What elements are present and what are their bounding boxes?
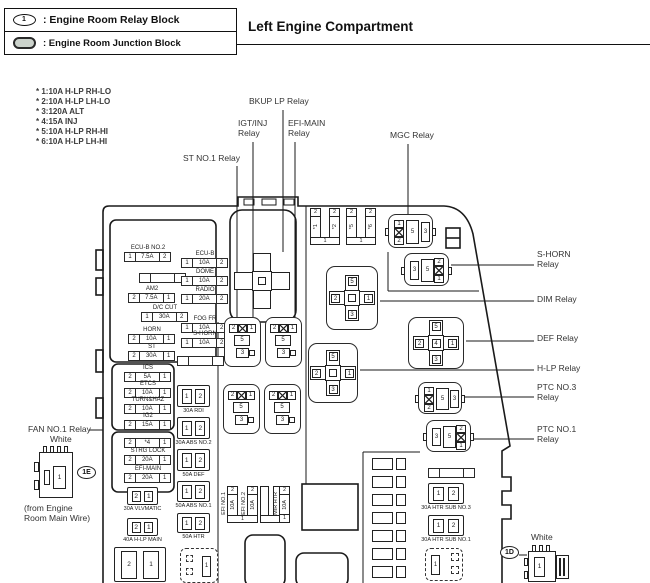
fuse-slot: 2*6 [365,208,376,238]
fuse-note: * 4:15A INJ [36,117,111,127]
connector-pin: 1 [431,555,440,575]
fuse-box [428,468,475,478]
relay-pin [456,433,466,442]
page-title: Left Engine Compartment [248,19,413,34]
relay-pin-nub [401,267,405,275]
fuse-slot-name-text: EFI NO.1 [221,492,227,515]
fuse-box-2: 12 [177,449,210,471]
relay-pin-nub [385,228,389,236]
fuse-box: 230A1 [128,351,175,361]
fuse-cell: 2 [216,258,228,268]
callout-text: ST NO.1 Relay [183,154,240,164]
fuse-slot-pin: 1 [280,514,289,521]
connector-tab [34,480,39,490]
relay-block-symbol: 1 [13,14,36,26]
callout-text: Room Main Wire) [24,514,90,524]
fuse-cell: 1 [163,293,175,303]
fuse-label: 30A HTR SUB NO.1 [401,537,491,543]
fuse-label: STRG LOCK [113,448,183,454]
def-relay-pin: 3 [432,355,441,364]
fuse-cell: 2 [132,491,141,502]
relay-pin: 2 [434,258,444,266]
relay-pin: 3 [410,261,419,280]
h-lp-relay-pin: 1 [345,369,354,378]
blank-fuse [372,512,393,524]
fuse-cell: 2 [195,421,205,436]
relay-pin: 2 [270,324,279,333]
fuse-slot: 210A [247,486,258,516]
fuse-cell: 1 [182,485,192,499]
fuse-slot-amp-text: *5 [349,224,355,229]
fuse-label: 40A H-LP MAIN [98,537,188,543]
callout-text: DIM Relay [537,295,577,305]
callout-mgc: MGC Relay [390,131,434,141]
callout-text: H-LP Relay [537,364,580,374]
fuse-cell: 2 [159,252,171,262]
blank-fuse [372,566,393,578]
mini-relay: 2153 [224,317,261,367]
relay-pin: 5 [233,402,249,413]
callout-st-no1: ST NO.1 Relay [183,154,240,164]
callout-efi-main: EFI-MAINRelay [288,119,325,138]
fuse-box: 110A2 [181,338,228,348]
relay-pin-nub [248,417,254,423]
fuse-slot-pin: 2 [311,209,320,217]
fuse-cell: 1 [433,487,444,501]
fuse-slot-amp-text: *6 [368,224,374,229]
relay-pin: 3 [276,415,289,425]
relay-pin-nub [448,267,452,275]
blank-fuse [396,548,406,560]
fuse-box-2: 12 [177,481,210,502]
relay-pin: 5 [443,426,456,448]
fuse-slot-pin: 2 [366,209,375,217]
grommet-label: 1D [500,546,519,559]
relay-pin-nub [461,395,465,403]
relay-pin [394,228,404,237]
fuse-cell: 1 [163,351,175,361]
fuse-note: * 6:10A H-LP LH-HI [36,137,111,147]
relay-pin: 1 [394,220,404,228]
fuse-label: 30A VLVMATIC [98,506,188,512]
h-lp-relay-pin: 2 [312,369,321,378]
callout-text: MGC Relay [390,131,434,141]
relay-block-diagram: 1 : Engine Room Relay Block : Engine Roo… [0,0,650,583]
fuse-cell: 10A [192,276,217,286]
relay-pin [238,324,247,333]
title-underline [236,44,650,45]
callout-igt-inj: IGT/INJRelay [238,119,267,138]
callout-h-lp: H-LP Relay [537,364,580,374]
fuse-cell: 7.5A [139,293,164,303]
fuse-box: 210A1 [128,334,175,344]
fuse-box-2: 21 [127,487,158,505]
blank-fuse [372,476,393,488]
h-lp-relay-pin: 3 [329,385,338,394]
fuse-box-2: 12 [177,417,210,439]
mini-relay: 2153 [265,317,302,367]
relay-pin: 3 [235,415,248,425]
fuse-cell: 2 [195,517,205,530]
callout-text: Relay [537,260,571,270]
fuse-label: 30A HTR SUB NO.3 [401,505,491,511]
relay-pin: 5 [275,335,291,346]
fuse-slot-amp: *5 [347,217,356,236]
fuse-slot-bottom: 1 [227,515,258,523]
fuse-cell: 1 [159,420,171,430]
fuse-cell: 2 [216,294,228,304]
relay-pin-nub [470,433,474,441]
blank-fuse [396,530,406,542]
def-relay-pin: 1 [448,339,457,348]
bkup-lp-relay-core [258,277,266,285]
fuse-label: TURN&HAZ [113,397,183,403]
fuse-label: ICS [113,365,183,371]
fuse-cell: 1 [182,453,192,468]
blank-fuse [396,458,406,470]
fuse-cell: 2 [132,522,141,533]
relay-pin: 5 [421,259,434,282]
fuse-cell: 10A [192,338,217,348]
fuse-note: * 1:10A H-LP RH-LO [36,87,111,97]
callout-text: White [50,435,72,445]
def-relay-pin: 4 [432,339,441,348]
fuse-slot-pin: 2 [248,487,257,495]
fuse-cell: 10A [139,334,164,344]
legend-box: 1 : Engine Room Relay Block : Engine Roo… [4,8,237,55]
fuse-slot-pin: 2 [330,209,339,217]
relay-pin: 1 [247,324,256,333]
fuse-cell: 1 [144,522,153,533]
fuse-box: 110A2 [181,258,228,268]
fuse-slot: 2*1 [310,208,321,238]
blank-fuse [372,548,393,560]
fan-connector-pin: 1 [53,466,66,489]
fuse-label: D/C CUT [130,305,200,311]
fuse-slot-amp: *6 [366,217,375,236]
fuse-label: 50A DEF [149,472,239,478]
relay-pin: 1 [434,275,444,283]
connector-slot [44,470,50,485]
legend-row-junction-block: : Engine Room Junction Block [5,31,236,54]
relay-pin-nub [423,433,427,441]
callout-text: Relay [288,129,325,139]
relay-pin: 5 [406,220,419,244]
fuse-cell: 2 [448,519,459,533]
fuse-slot-name-text: MIR HTR [273,492,279,515]
blank-fuse [396,476,406,488]
relay-pin-nub [289,417,295,423]
relay-pin-nub [415,395,419,403]
fuse-cell: 1 [182,421,192,436]
callout-bottom-right-color: White [531,533,553,543]
legend-row-relay-block: 1 : Engine Room Relay Block [5,9,236,31]
relay-pin: 3 [450,390,459,408]
connector-pin: 1 [534,557,545,577]
fuse-cell: 20A [192,294,217,304]
fuse-slot-amp-text: *1 [313,224,319,229]
callout-text: Relay [537,435,576,445]
fuse-cell: 2 [121,551,137,579]
fuse-box-2: 12 [177,513,210,533]
fuse-slot-amp-text: *2 [332,224,338,229]
fuse-box: 27.5A1 [128,293,175,303]
fuse-label: 30A ABS NO.2 [149,440,239,446]
fuse-slot: 2*2 [329,208,340,238]
fuse-slot-name-text: EFI NO.2 [241,492,247,515]
relay-pin: 5 [436,388,449,410]
callout-text: Relay [537,393,576,403]
relay-pin [278,391,287,400]
fuse-slot-bottom: 1 [346,237,376,245]
ptc-no1-relay: 2153 [426,420,471,452]
relay-pin [424,395,434,404]
fuse-slot-pin: 2 [347,209,356,217]
fuse-cell: 1 [144,491,153,502]
h-lp-relay-core [329,369,337,377]
fuse-cell: 2 [195,389,205,404]
fuse-cell [212,356,224,366]
fuse-cell: 20A [135,455,160,465]
fuse-notes-list: * 1:10A H-LP RH-LO* 2:10A H-LP LH-LO* 3:… [36,87,111,147]
fuse-box-2: 12 [428,515,464,536]
blank-fuse [372,458,393,470]
fuse-slot: 2*5 [346,208,357,238]
fuse-box: 17.5A2 [124,252,171,262]
fuse-slot-bottom: 1 [310,237,340,245]
fuse-cell: 7.5A [135,252,160,262]
callout-ptc-no1: PTC NO.1Relay [537,425,576,444]
relay-pin: 2 [424,404,434,412]
fuse-label: RADIO [170,287,240,293]
fuse-slot-pin: 2 [228,487,237,495]
relay-pin: 2 [269,391,278,400]
callout-bkup-lp: BKUP LP Relay [249,97,309,107]
callout-s-horn: S-HORNRelay [537,250,571,269]
blank-fuse [396,512,406,524]
mini-relay: 2153 [264,384,301,434]
relay-pin: 2 [394,237,404,245]
connector-tab [524,571,528,579]
fuse-slot-pin: 2 [280,487,289,495]
legend-label-relay-block: : Engine Room Relay Block [43,14,180,26]
fuse-slot-amp: 10A [248,495,257,514]
relay-pin: 3 [236,348,249,358]
relay-pin: 1 [456,442,466,450]
fuse-slot-amp-text: 10A [282,500,288,510]
mgc-relay: 1253 [388,214,433,248]
relay-pin: 2 [228,391,237,400]
relay-pin [434,266,444,275]
fuse-label: ETCS [113,381,183,387]
legend-label-junction-block: : Engine Room Junction Block [43,38,181,49]
fuse-box-2: 21 [127,518,158,536]
def-relay-pin: 2 [415,339,424,348]
connector-tab [524,558,528,566]
callout-text: BKUP LP Relay [249,97,309,107]
relay-pin-nub [432,228,436,236]
relay-pin: 3 [432,428,441,446]
dim-relay-pin: 3 [348,310,357,319]
fuse-label: ST [117,344,187,350]
fuse-slot-amp: 10A [280,495,289,514]
fuse-box: 110A2 [181,276,228,286]
fuse-slot-name: MIR HTR [272,486,279,520]
relay-pin: 1 [424,387,434,395]
relay-pin: 3 [277,348,290,358]
relay-pin: 5 [274,402,290,413]
relay-pin: 1 [246,391,255,400]
fuse-cell [188,356,213,366]
fuse-slot-name: EFI NO.1 [220,486,227,520]
dim-relay-pin: 2 [331,294,340,303]
fuse-note: * 2:10A H-LP LH-LO [36,97,111,107]
relay-block-oval-icon: 1 [5,14,43,26]
fuse-slot-amp-text: 10A [230,500,236,510]
fuse-note: * 5:10A H-LP RH-HI [36,127,111,137]
fuse-box [177,356,224,366]
fuse-box-2: 12 [428,483,464,504]
fuse-slot-amp: 10A [228,495,237,514]
fuse-cell: 2 [195,485,205,499]
fuse-label: ECU-B [170,251,240,257]
relay-pin: 1 [288,324,297,333]
relay-pin: 2 [456,425,466,433]
fuse-cell: 30A [139,351,164,361]
mini-relay: 2153 [223,384,260,434]
fuse-slot-amp-text: 10A [250,500,256,510]
blank-fuse [372,494,393,506]
fuse-label: DOME [170,269,240,275]
fuse-cell: 1 [433,519,444,533]
fuse-box: 215A1 [124,420,171,430]
fuse-box-2: 21 [114,547,166,582]
relay-pin-nub [249,350,255,356]
fuse-slot [260,486,269,516]
relay-pin-nub [290,350,296,356]
fuse-cell: 2 [448,487,459,501]
fuse-slot: 210A [227,486,238,516]
callout-dim: DIM Relay [537,295,577,305]
fuse-cell: 2 [195,453,205,468]
callout-text: White [531,533,553,543]
fuse-cell: 2 [216,276,228,286]
ptc-no3-relay: 1253 [418,382,462,414]
def-relay-pin: 5 [432,322,441,331]
dim-relay-pin: 5 [348,277,357,286]
blank-fuse [396,494,406,506]
connector-tab [34,462,39,472]
fuse-cell: 10A [192,258,217,268]
callout-text: DEF Relay [537,334,578,344]
fuse-slot-amp: *2 [330,217,339,236]
relay-pin [237,391,246,400]
fuse-box: 220A1 [124,455,171,465]
blank-fuse [372,530,393,542]
fuse-cell: 15A [135,420,160,430]
callout-def: DEF Relay [537,334,578,344]
fuse-cell: 1 [182,389,192,404]
blank-fuse [396,566,406,578]
relay-pin: 1 [287,391,296,400]
callout-ptc-no3: PTC NO.3Relay [537,383,576,402]
callout-fan-color: White [50,435,72,445]
fuse-box: 120A2 [181,294,228,304]
callout-from-wire: (from EngineRoom Main Wire) [24,504,90,523]
fuse-cell [463,468,475,478]
fuse-cell [439,468,464,478]
fuse-note: * 3:120A ALT [36,107,111,117]
fuse-cell: 1 [159,455,171,465]
s-horn-relay: 2153 [404,253,449,286]
connector-pin: 1 [202,556,211,577]
fuse-slot-amp: *1 [311,217,320,236]
fuse-cell: 1 [182,517,192,530]
relay-pin: 3 [421,222,430,242]
h-lp-relay-pin: 5 [329,352,338,361]
fuse-cell: 1 [143,551,159,579]
grommet-label: 1E [77,466,96,479]
callout-text: Relay [238,129,267,139]
fuse-box-2: 12 [177,385,210,407]
relay-pin: 5 [234,335,250,346]
junction-block-oval-icon [5,37,43,49]
relay-pin: 2 [229,324,238,333]
dim-relay-core [348,294,356,302]
dim-relay-pin: 1 [364,294,373,303]
relay-pin [279,324,288,333]
fuse-slot: 210A1 [279,486,290,523]
